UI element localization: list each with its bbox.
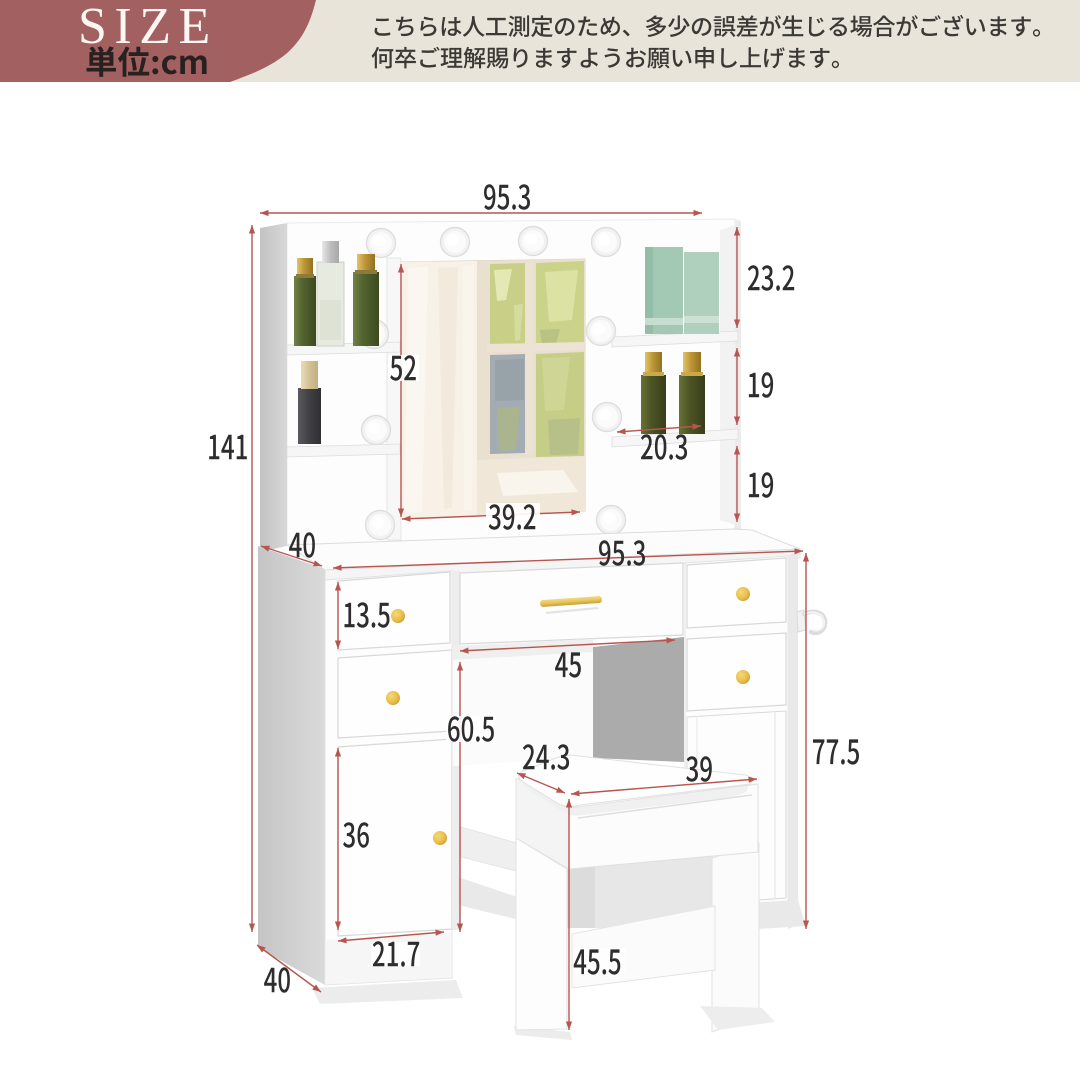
svg-text:SIZE: SIZE [78, 0, 218, 55]
